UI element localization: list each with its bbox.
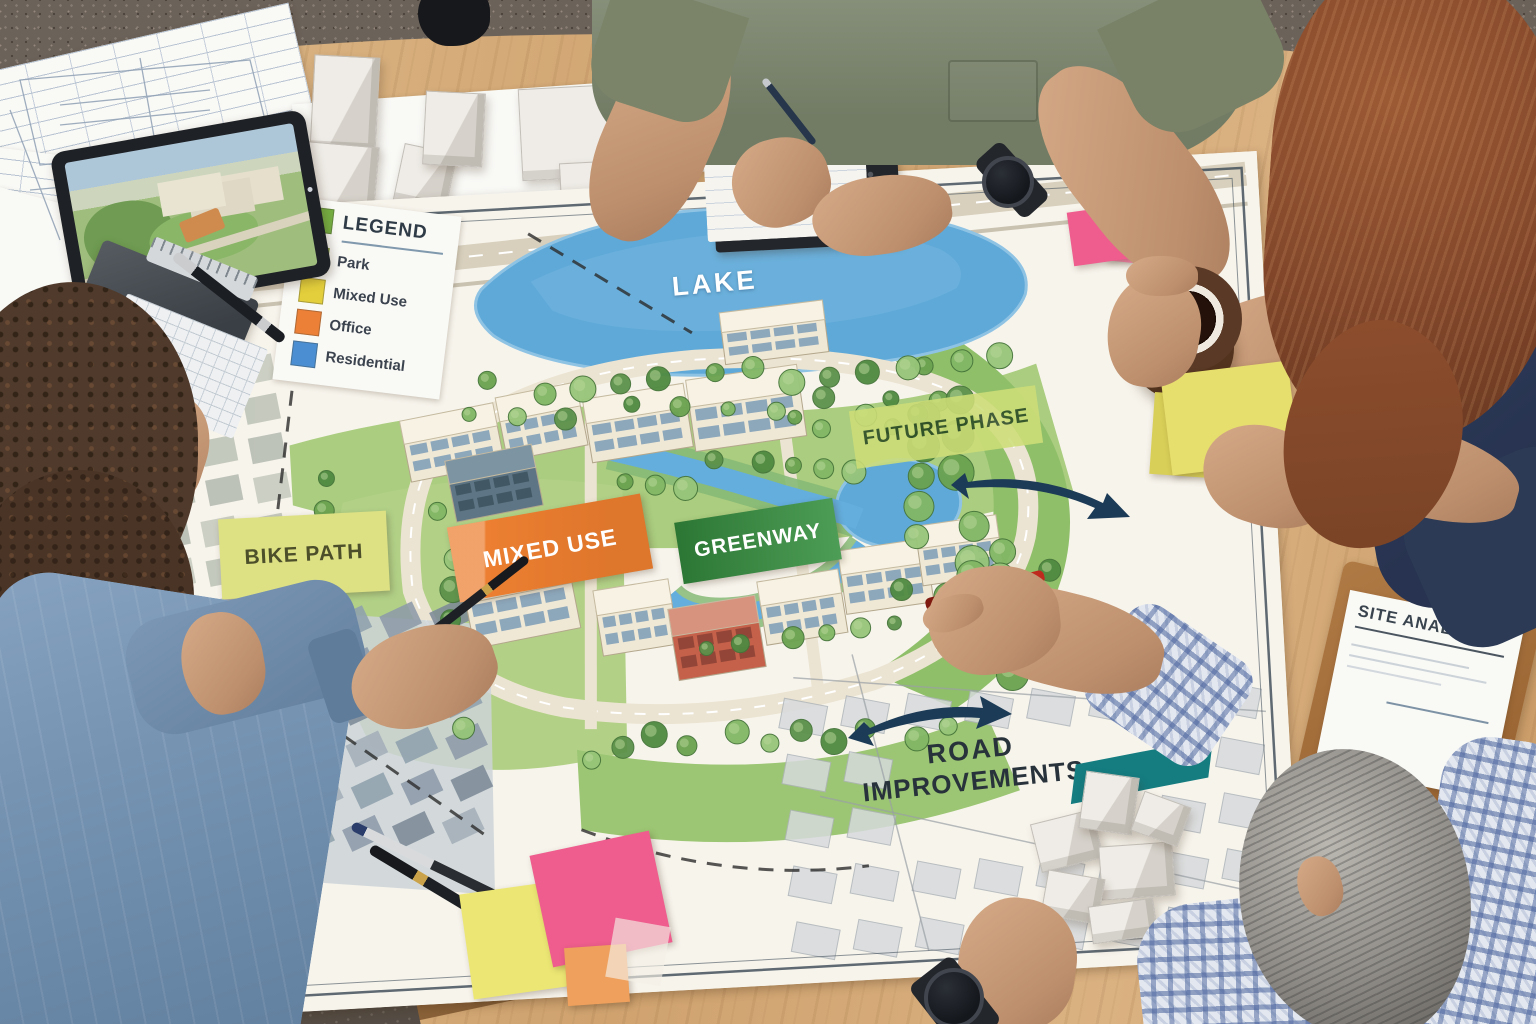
foam-block bbox=[1078, 771, 1140, 836]
bike-path-label: BIKE PATH bbox=[244, 540, 364, 570]
foam-block bbox=[1098, 841, 1176, 900]
future-phase-label: FUTURE PHASE bbox=[861, 404, 1030, 450]
foam-block bbox=[422, 90, 486, 167]
legend-label-mixed-use: Mixed Use bbox=[332, 285, 408, 311]
legend-swatch-office bbox=[294, 309, 322, 337]
legend-title: LEGEND bbox=[342, 212, 429, 244]
watch-top-man bbox=[982, 156, 1034, 208]
mixed-use-label: MIXED USE bbox=[481, 523, 619, 573]
flow-arrow-east bbox=[935, 455, 1145, 545]
person-top-pocket bbox=[948, 60, 1038, 122]
road-arrow bbox=[830, 688, 1020, 758]
paper-line bbox=[1347, 665, 1441, 686]
sticky-note-translucent bbox=[605, 918, 671, 987]
legend-label-residential: Residential bbox=[324, 348, 406, 375]
paper-line-blue bbox=[1386, 701, 1488, 724]
tablet-camera-dot bbox=[307, 187, 313, 193]
greenway-label: GREENWAY bbox=[693, 519, 824, 563]
watch-bottom-man bbox=[924, 968, 984, 1024]
legend-swatch-mixed-use bbox=[298, 277, 326, 305]
photo-scene: LEGEND Park Mixed Use Office Residential… bbox=[0, 0, 1536, 1024]
person-right-fingers bbox=[1126, 256, 1198, 296]
legend-label-office: Office bbox=[328, 317, 372, 339]
legend-label-park: Park bbox=[336, 253, 370, 274]
legend-swatch-residential bbox=[290, 340, 318, 368]
foam-block bbox=[310, 54, 381, 153]
